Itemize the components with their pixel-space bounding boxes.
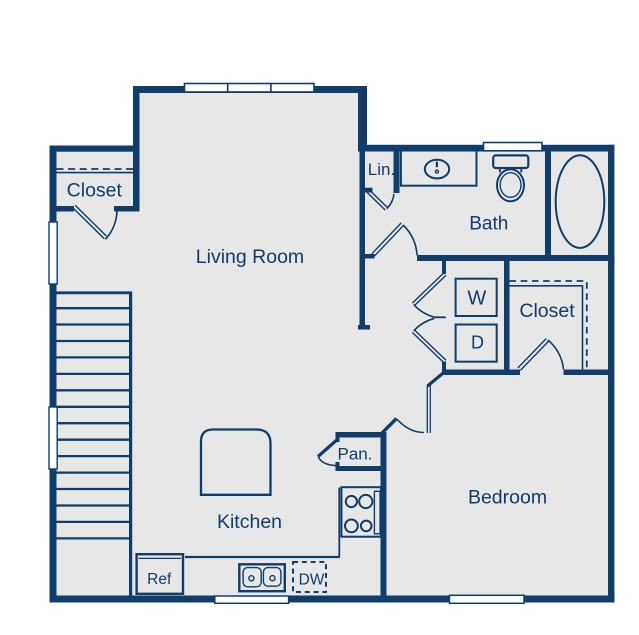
svg-text:DW: DW [299,572,325,589]
svg-text:Pan.: Pan. [338,445,373,464]
svg-text:D: D [471,333,484,353]
svg-text:Ref: Ref [147,571,172,588]
svg-text:Bath: Bath [469,214,508,235]
svg-text:Bedroom: Bedroom [468,487,547,509]
svg-text:Living Room: Living Room [196,246,304,268]
svg-text:Closet: Closet [519,300,575,322]
svg-text:Closet: Closet [67,180,123,202]
svg-text:Lin.: Lin. [368,160,395,179]
svg-text:W: W [467,287,486,309]
svg-text:Kitchen: Kitchen [217,511,282,533]
